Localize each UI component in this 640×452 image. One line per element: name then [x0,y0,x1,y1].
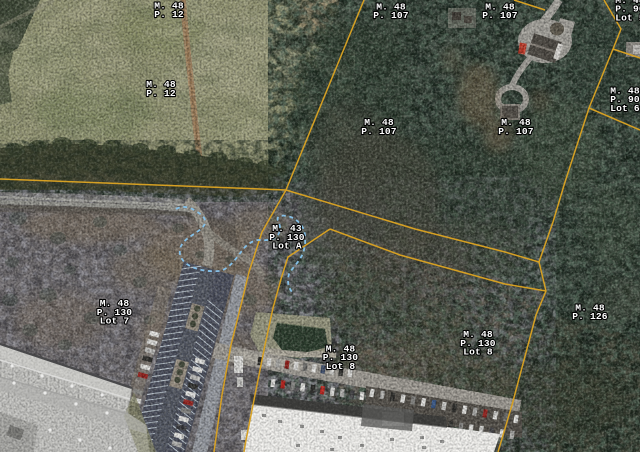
svg-text:M. 48P. 12: M. 48P. 12 [146,79,176,99]
svg-text:M. 48P. 130Lot 8: M. 48P. 130Lot 8 [323,343,359,372]
svg-text:M. 48P. 107: M. 48P. 107 [361,117,397,137]
svg-text:M. 48P. 90Lot 6: M. 48P. 90Lot 6 [610,86,640,115]
svg-text:M. 48P. 130Lot 7: M. 48P. 130Lot 7 [97,298,133,327]
svg-text:M. 48P. 12: M. 48P. 12 [154,1,184,21]
svg-text:M. 48P. 130Lot 8: M. 48P. 130Lot 8 [460,329,496,358]
svg-text:M. 48P. 107: M. 48P. 107 [373,2,409,22]
svg-text:M. 48P. 107: M. 48P. 107 [482,2,518,22]
svg-text:M. 43P. 130Lot A: M. 43P. 130Lot A [269,223,305,252]
svg-text:M. 48P. 126: M. 48P. 126 [572,303,608,323]
svg-text:M. 48P. 90Lot 5: M. 48P. 90Lot 5 [615,0,640,23]
svg-text:M. 48P. 107: M. 48P. 107 [498,117,534,137]
